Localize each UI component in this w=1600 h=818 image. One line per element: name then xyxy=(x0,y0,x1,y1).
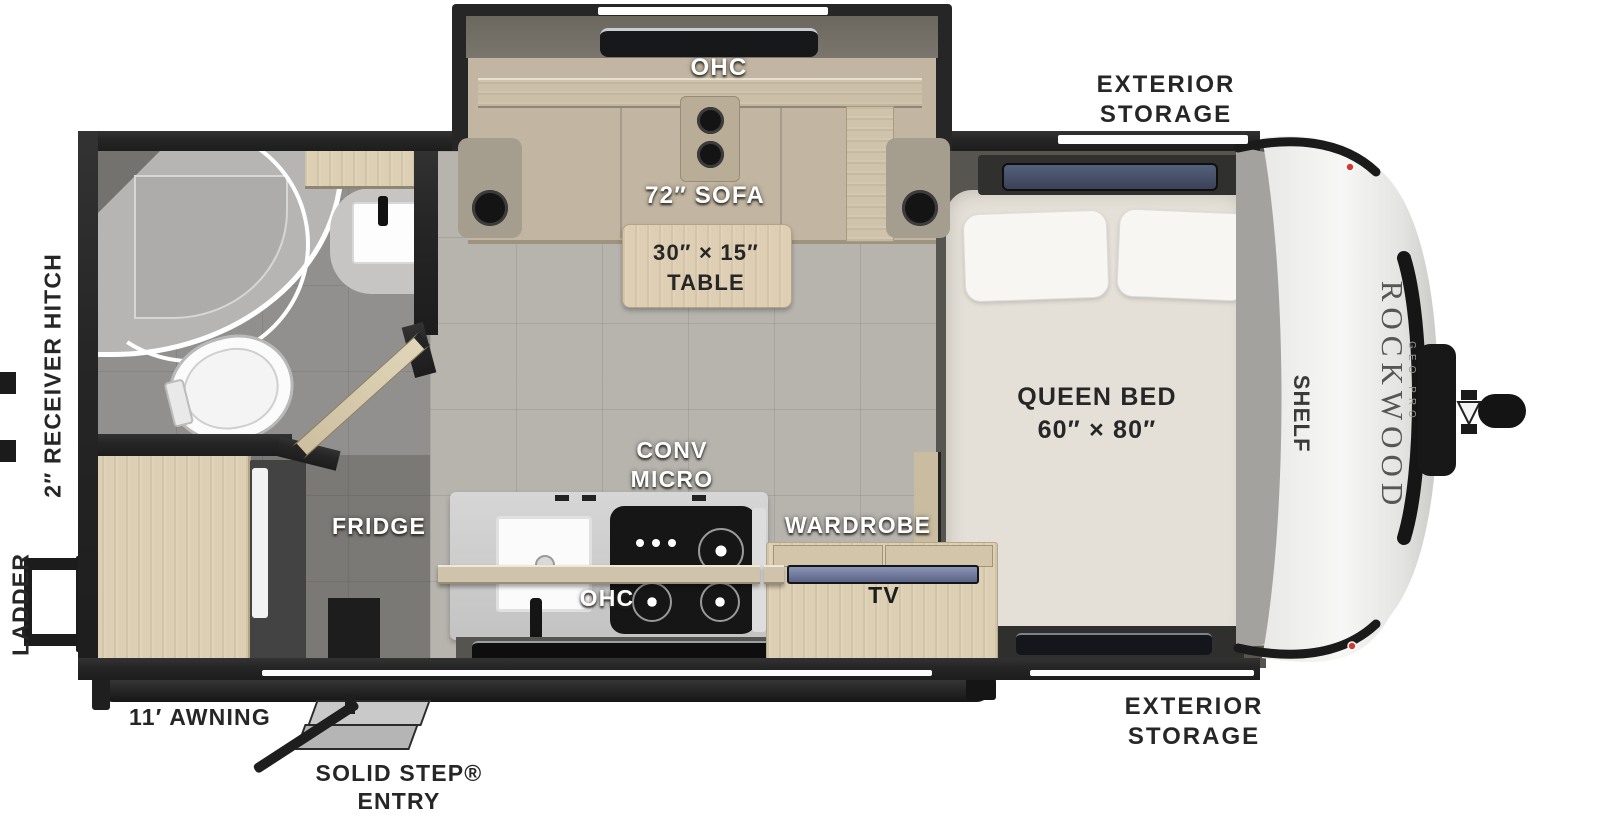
slide-top-window xyxy=(598,7,828,15)
headboard-counter xyxy=(978,155,1244,195)
front-cap: ROCKWOOD GEO PRO xyxy=(1232,118,1552,698)
label-sofa: 72″ SOFA xyxy=(605,181,805,211)
label-table-word: TABLE xyxy=(622,268,790,298)
sofa-console xyxy=(680,96,740,182)
bathroom-ohc-cabinet xyxy=(305,150,417,189)
cooktop-dot xyxy=(668,539,676,547)
kitchen-faucet xyxy=(530,598,542,640)
wardrobe-lid xyxy=(885,545,993,567)
counter-knob xyxy=(582,495,596,501)
receiver-hitch-stub xyxy=(0,372,16,394)
label-table-size: 30″ × 15″ xyxy=(622,238,790,268)
left-wall xyxy=(78,131,98,680)
sofa-seam xyxy=(780,98,782,238)
tongue-jack xyxy=(1458,402,1480,424)
label-entry-line2: ENTRY xyxy=(299,788,499,816)
clearance-light xyxy=(1348,642,1356,650)
label-storage-line2: STORAGE xyxy=(1094,722,1294,752)
label-exterior-storage-bottom: EXTERIOR STORAGE xyxy=(1094,692,1294,752)
bathroom-faucet xyxy=(378,196,388,226)
bathroom-right-wall xyxy=(414,143,438,335)
top-wall-left xyxy=(78,131,470,151)
kitchen-ohc-bar xyxy=(438,565,760,584)
label-entry-line1: SOLID STEP® xyxy=(299,760,499,788)
sofa-armrest-left xyxy=(458,138,522,238)
label-shelf: SHELF xyxy=(1287,369,1315,459)
armrest-cupholder xyxy=(472,190,508,226)
pillow xyxy=(963,210,1110,303)
step-rail xyxy=(345,694,355,714)
awning-rail-strip xyxy=(262,670,932,676)
cooktop-dot xyxy=(636,539,644,547)
label-storage-line1: EXTERIOR xyxy=(1094,692,1294,722)
label-table: 30″ × 15″ TABLE xyxy=(622,238,790,297)
rear-cabinet xyxy=(90,456,251,662)
label-conv-line1: CONV xyxy=(602,436,742,465)
hitch-coupler xyxy=(1478,394,1526,428)
bedroom-bottom-window xyxy=(1030,670,1254,676)
ladder-rung xyxy=(28,634,78,646)
kitchen-ohc-bar2 xyxy=(764,565,784,584)
label-fridge: FRIDGE xyxy=(309,512,449,541)
jack-bracket xyxy=(1461,424,1477,434)
label-tv: TV xyxy=(834,581,934,610)
brand-sub-logo: GEO PRO xyxy=(1406,341,1417,423)
console-cupholder xyxy=(697,107,724,134)
foot-counter xyxy=(990,626,1244,662)
bedroom-top-window xyxy=(1058,135,1248,144)
wardrobe-lid xyxy=(773,545,883,567)
label-queen-bed: QUEEN BED 60″ × 80″ xyxy=(987,381,1207,446)
bottom-wall xyxy=(78,658,1260,680)
label-conv-line2: MICRO xyxy=(602,465,742,494)
bathroom-bottom-wall xyxy=(88,434,292,456)
label-bed-size: 60″ × 80″ xyxy=(987,414,1207,447)
label-ohc-slide: OHC xyxy=(669,53,769,83)
label-receiver-hitch: 2″ RECEIVER HITCH xyxy=(39,247,68,503)
counter-knob xyxy=(555,495,569,501)
counter-knob xyxy=(692,495,706,501)
fridge xyxy=(250,460,306,660)
ladder-rung xyxy=(28,558,78,570)
toilet-lid xyxy=(175,339,288,440)
sofa-armrest-right xyxy=(886,138,950,238)
label-entry: SOLID STEP® ENTRY xyxy=(299,760,499,815)
label-ladder: LADDER xyxy=(7,549,36,659)
headboard-window xyxy=(1002,163,1218,191)
brand-logo: ROCKWOOD xyxy=(1375,281,1410,512)
armrest-cupholder xyxy=(902,190,938,226)
label-ohc-kitchen: OHC xyxy=(557,584,657,613)
label-storage-line2: STORAGE xyxy=(1066,100,1266,130)
clearance-light xyxy=(1346,163,1354,171)
propane-cover xyxy=(1418,344,1456,476)
label-awning: 11′ AWNING xyxy=(100,703,300,732)
foot-window xyxy=(1016,633,1212,655)
burner xyxy=(700,582,740,622)
cooktop-dot xyxy=(652,539,660,547)
furnace-box xyxy=(328,598,380,660)
awning-bracket xyxy=(966,678,996,700)
sofa-seam xyxy=(620,98,622,238)
fridge-door xyxy=(252,468,268,618)
floorplan: ROCKWOOD GEO PRO OHC 72″ SOFA 30″ × 15″ … xyxy=(0,0,1600,818)
jack-bracket xyxy=(1461,390,1477,400)
label-wardrobe: WARDROBE xyxy=(758,511,958,540)
receiver-hitch-stub xyxy=(0,440,16,462)
label-conv-micro: CONV MICRO xyxy=(602,436,742,494)
console-cupholder xyxy=(697,141,724,168)
pillow xyxy=(1116,208,1250,302)
label-storage-line1: EXTERIOR xyxy=(1066,70,1266,100)
label-exterior-storage-top: EXTERIOR STORAGE xyxy=(1066,70,1266,130)
label-bed-name: QUEEN BED xyxy=(987,381,1207,414)
